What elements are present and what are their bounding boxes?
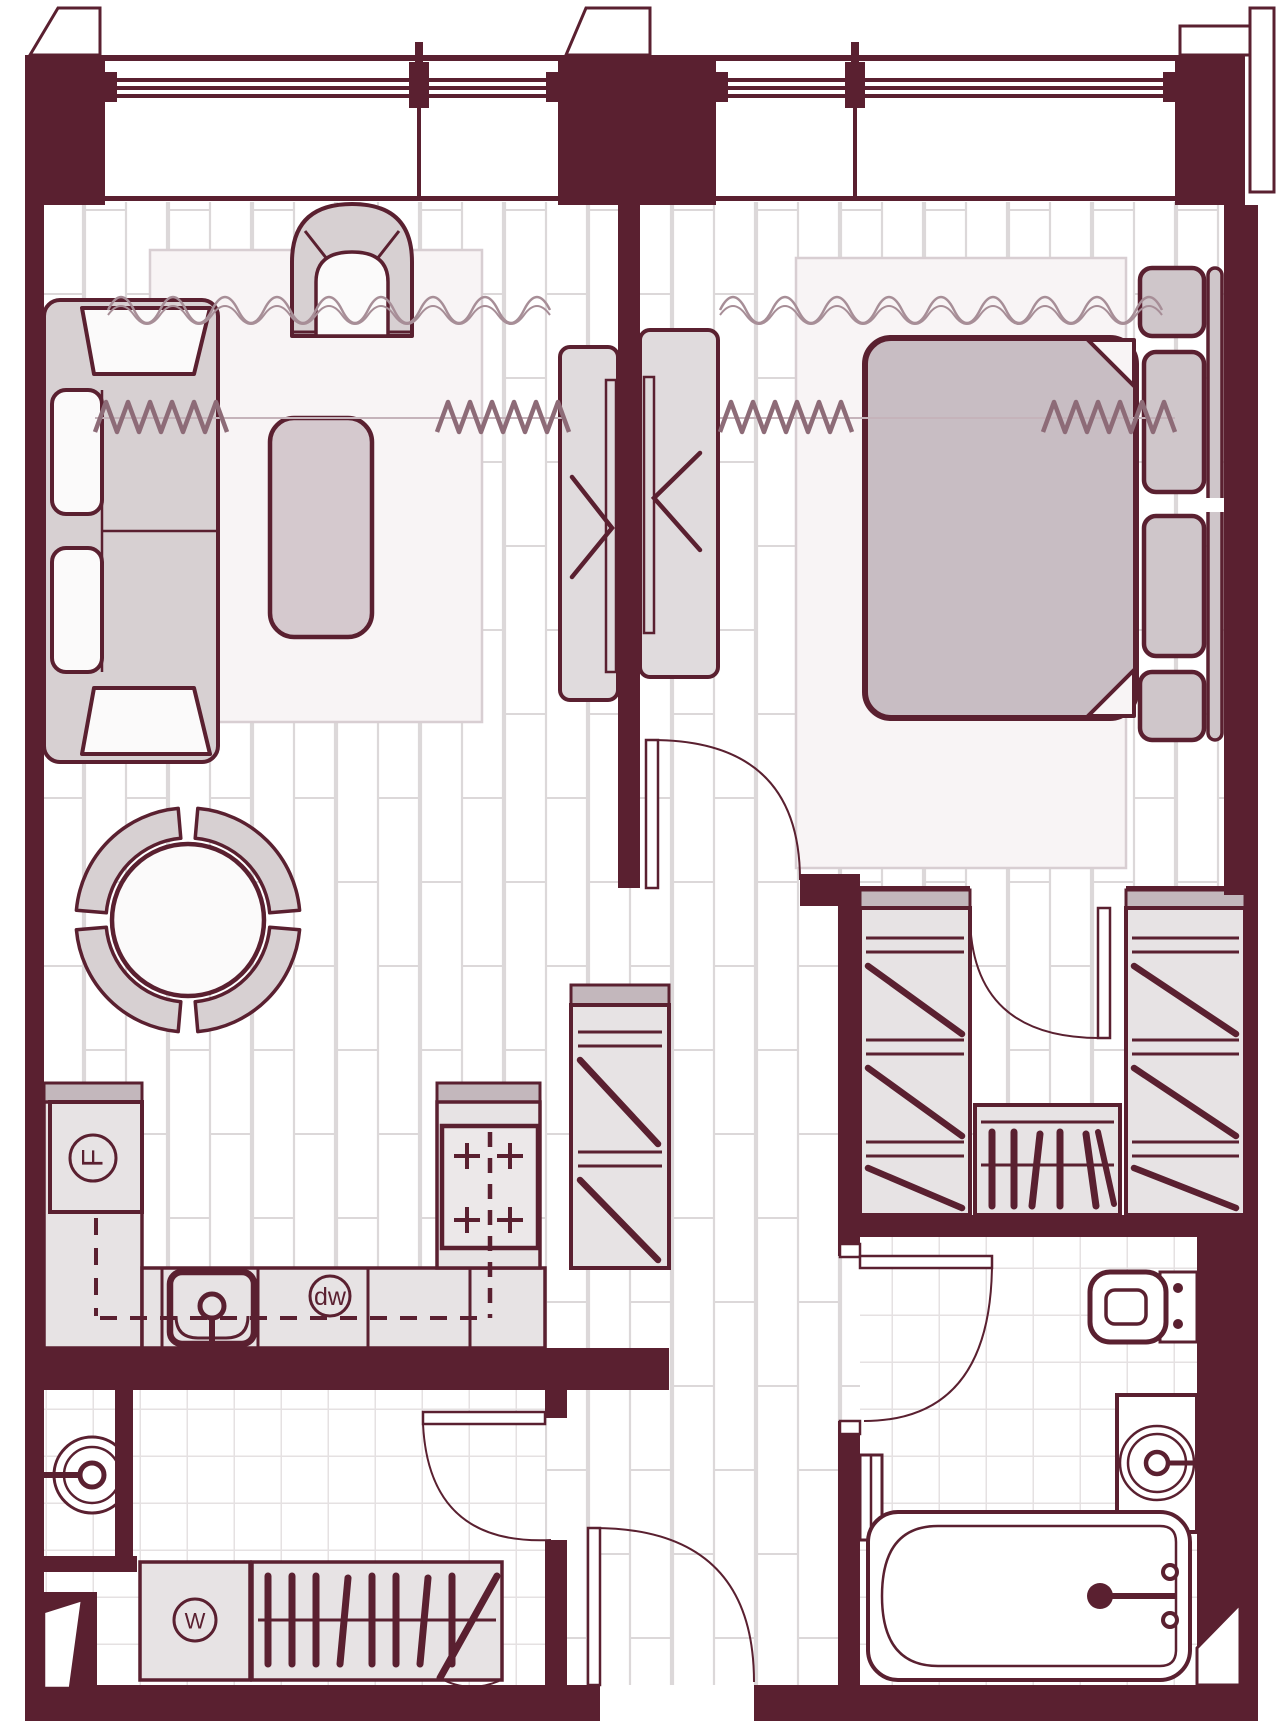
- wall-pier-top-left: [25, 55, 105, 205]
- wall-left: [25, 205, 44, 1721]
- floor-plan-canvas: F dw W: [0, 0, 1280, 1721]
- washer-label: W: [185, 1609, 206, 1634]
- wall-right-closet: [1245, 890, 1258, 1237]
- dining-set: [76, 808, 299, 1031]
- window-mullion: [409, 62, 429, 108]
- dishwasher-label: dw: [314, 1283, 347, 1311]
- door-leaf: [588, 1528, 600, 1685]
- sofa-seat-cushion-bottom: [82, 688, 210, 754]
- sofa-back-cushion: [52, 390, 102, 514]
- wall-partition-living-bedroom: [618, 205, 640, 888]
- closet-hanging-wardrobe: [975, 1105, 1120, 1215]
- counter-band: [437, 1083, 540, 1102]
- window-living: [105, 42, 558, 201]
- door-leaf: [1098, 908, 1110, 1038]
- window-bedroom: [716, 42, 1175, 201]
- bedroom: [560, 268, 1228, 740]
- wall-bottom-right: [754, 1685, 1258, 1721]
- shelving-unit-right: [1126, 886, 1245, 1215]
- sofa: [44, 300, 218, 762]
- wall-pier-top-right: [1175, 55, 1245, 205]
- dining-table: [112, 844, 264, 996]
- facade-notch: [1250, 8, 1274, 192]
- counter-band: [44, 1083, 142, 1102]
- faucet-icon: [1146, 1452, 1168, 1474]
- wall-closet-bathroom: [838, 1215, 1258, 1237]
- tv-console-bedroom-side: [640, 330, 718, 677]
- door-leaf: [423, 1412, 545, 1424]
- kitchen-sink: [170, 1272, 254, 1348]
- faucet-icon: [80, 1463, 104, 1487]
- wall-laundry-partition-upper: [545, 1390, 567, 1418]
- fridge-label: F: [77, 1149, 110, 1167]
- wall-nook-bottom: [44, 1556, 137, 1572]
- door-leaf: [646, 740, 658, 888]
- nightstand: [1140, 672, 1204, 740]
- entry-doorway-gap: [600, 1685, 754, 1721]
- pantry-unit: [571, 985, 669, 1268]
- window-mullion: [845, 62, 865, 108]
- wall-right-bedroom: [1224, 205, 1258, 895]
- laundry-wardrobe: [252, 1562, 502, 1687]
- balcony-notch: [566, 8, 650, 55]
- toilet: [1090, 1272, 1211, 1342]
- balcony-notch: [1180, 26, 1258, 55]
- pillow: [1144, 352, 1204, 492]
- wall-kitchen-bottom: [25, 1348, 669, 1390]
- balcony-notch: [30, 8, 100, 55]
- coffee-table: [270, 418, 372, 637]
- floor-plan: F dw W: [0, 0, 1280, 1721]
- wall-bathroom-left-lower: [838, 1421, 860, 1685]
- wall-stub-bedroom-door: [800, 874, 860, 906]
- wall-laundry-partition-lower: [545, 1540, 567, 1685]
- sofa-back-cushion: [52, 548, 102, 672]
- nightstand: [1140, 268, 1204, 336]
- bed-duvet: [865, 338, 1136, 718]
- pillow: [1144, 516, 1204, 656]
- door-leaf: [860, 1256, 992, 1268]
- counter-band: [571, 985, 669, 1005]
- faucet-icon: [200, 1294, 224, 1318]
- shelving-unit-left: [860, 886, 970, 1215]
- wall-pier-top-center: [558, 55, 716, 205]
- wall-nook: [115, 1390, 133, 1562]
- wall-bottom-left: [25, 1685, 600, 1721]
- wall-closet-left: [838, 906, 860, 1237]
- bathtub: [868, 1512, 1190, 1680]
